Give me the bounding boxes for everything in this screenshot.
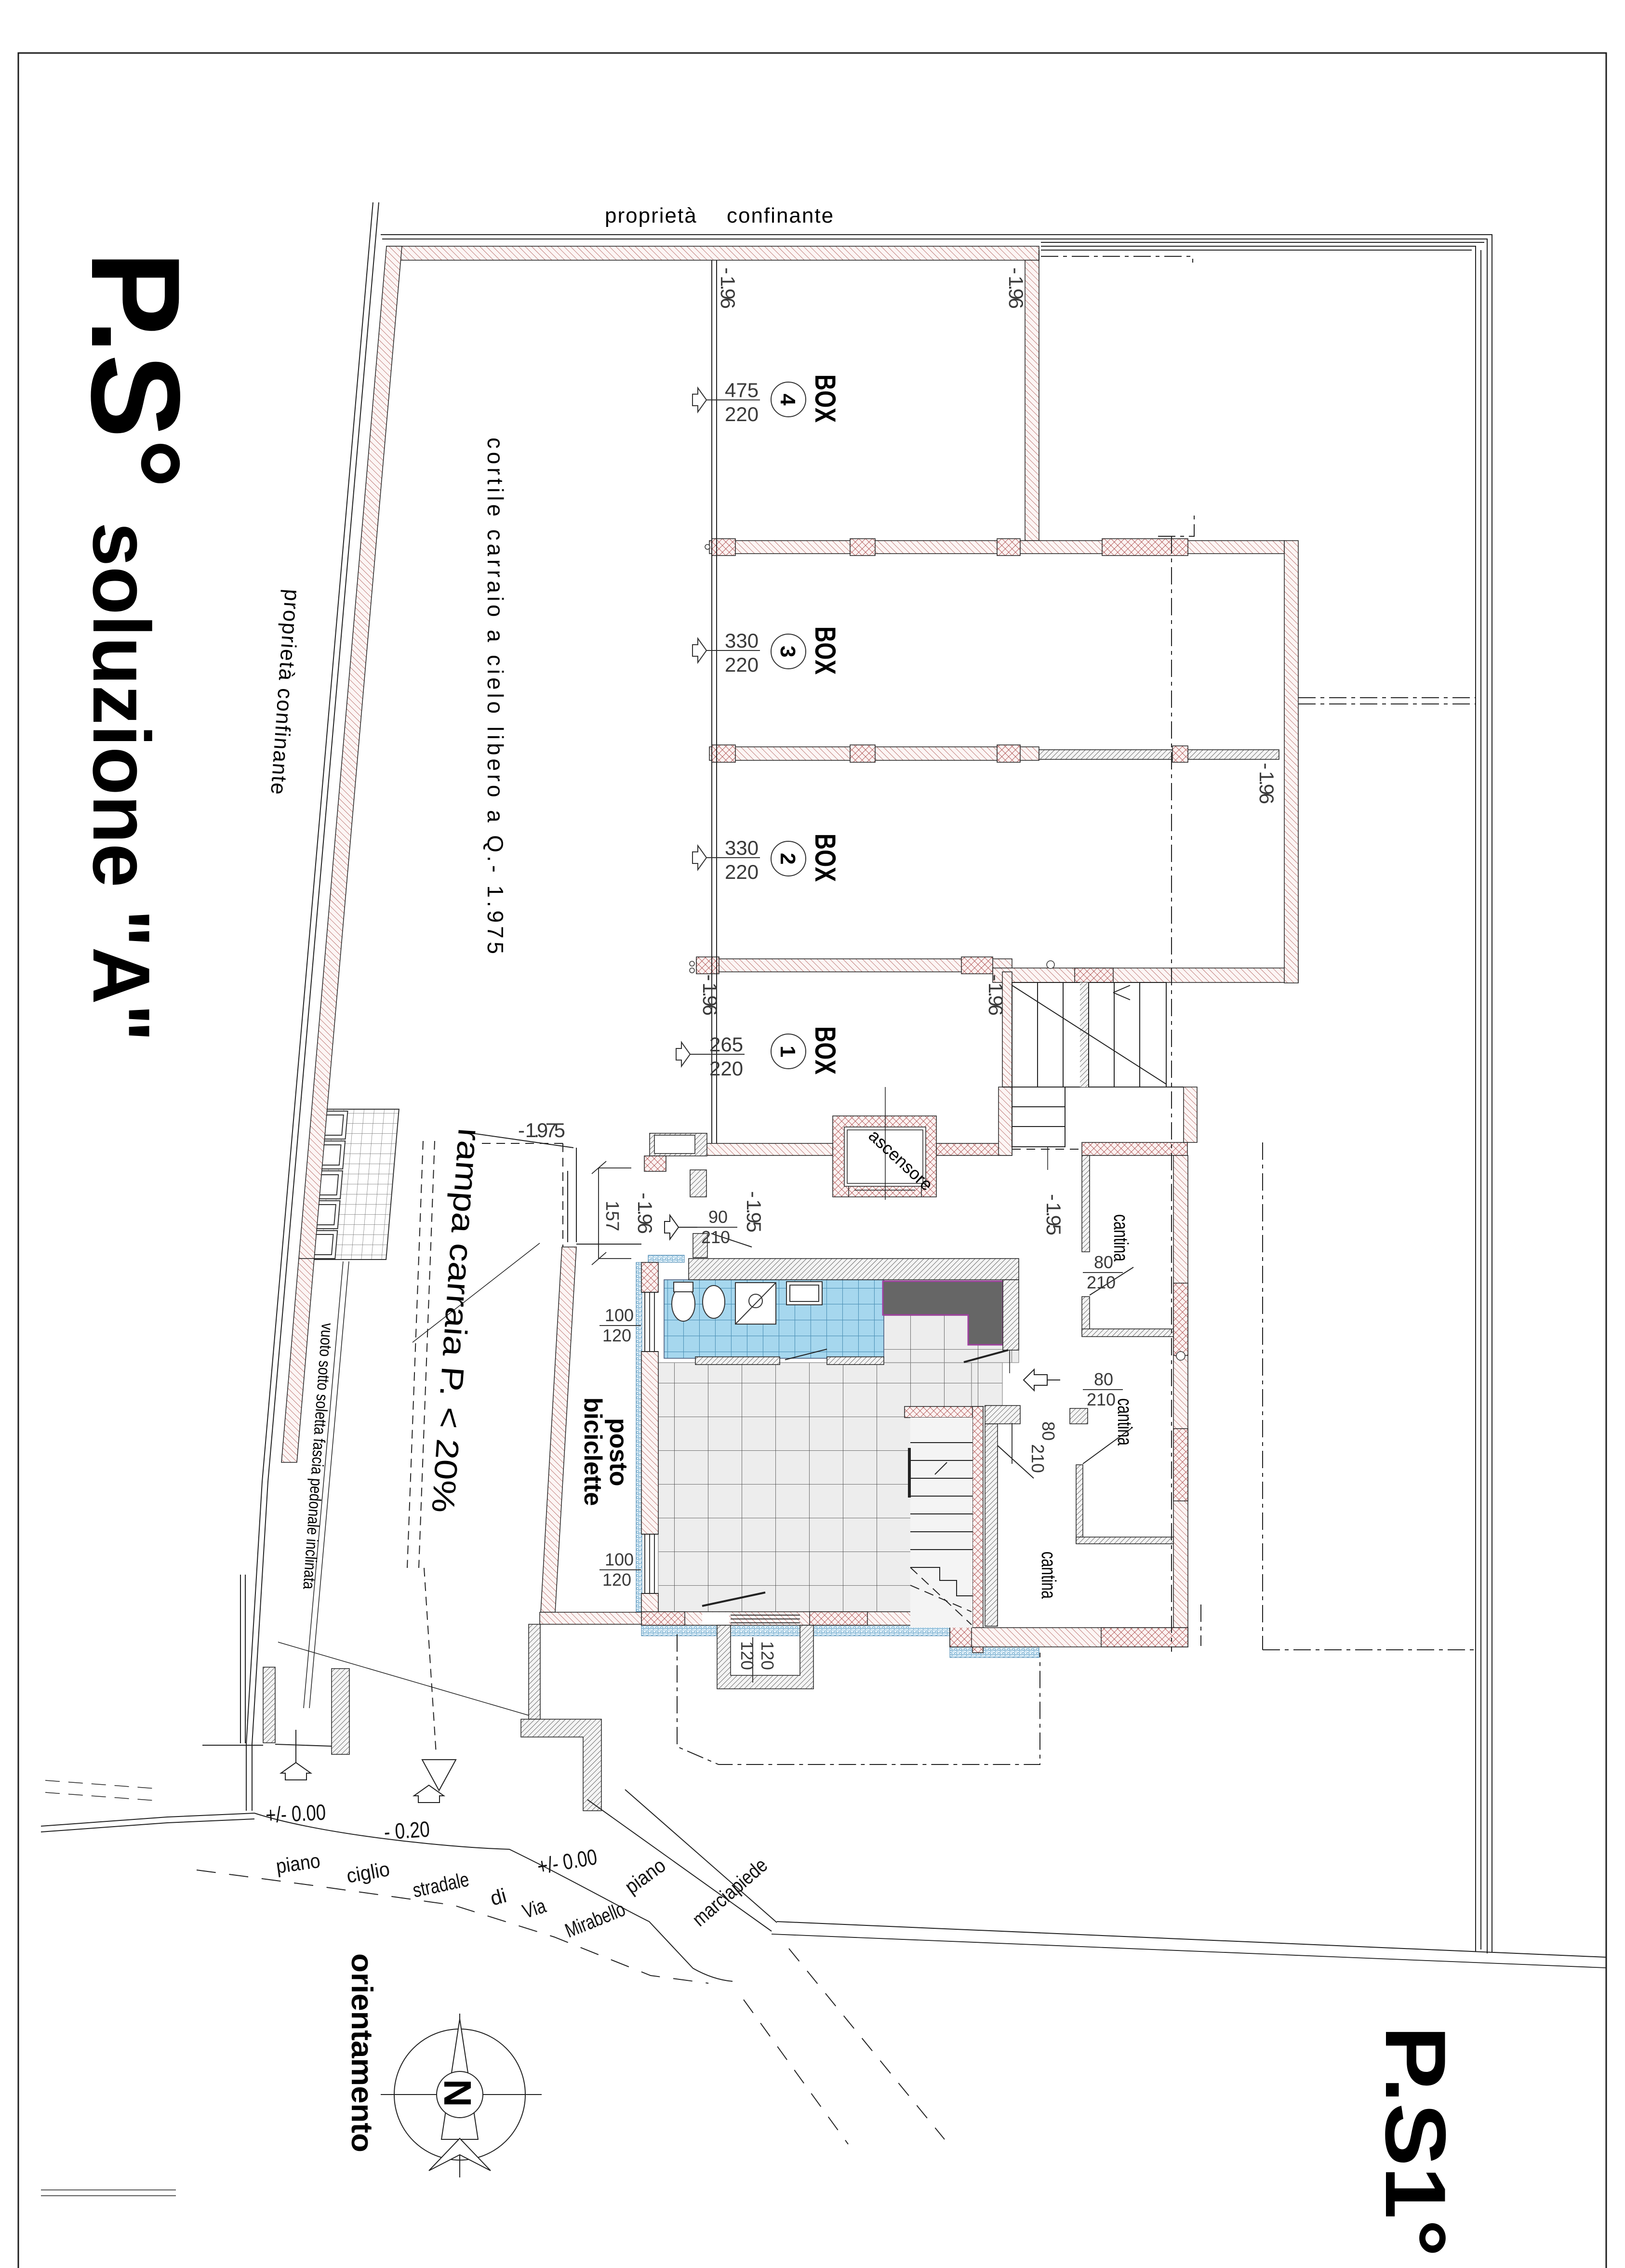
svg-text:Via: Via <box>519 1894 549 1923</box>
svg-text:cortile carraio a cielo li: cortile carraio a cielo libero a Q.- 1.9… <box>483 438 508 954</box>
svg-text:proprietà: proprietà <box>605 204 697 227</box>
svg-text:220: 220 <box>709 1057 743 1080</box>
svg-text:cantina: cantina <box>1114 1398 1136 1446</box>
svg-text:stradale: stradale <box>411 1868 471 1902</box>
svg-text:265: 265 <box>709 1033 743 1056</box>
svg-text:120: 120 <box>758 1641 777 1670</box>
svg-text:+/- 0.00: +/- 0.00 <box>265 1800 327 1828</box>
svg-text:ciglio: ciglio <box>345 1857 391 1887</box>
svg-text:2: 2 <box>776 853 799 864</box>
svg-text:BOX: BOX <box>809 374 841 423</box>
svg-text:- 1.975: - 1.975 <box>518 1119 565 1141</box>
svg-text:100: 100 <box>605 1305 634 1325</box>
svg-text:di: di <box>488 1884 509 1910</box>
svg-text:220: 220 <box>725 861 759 883</box>
svg-text:157: 157 <box>602 1201 622 1231</box>
svg-text:piano: piano <box>275 1849 322 1878</box>
svg-text:- 1.96: - 1.96 <box>1005 267 1027 309</box>
svg-text:210: 210 <box>1028 1444 1048 1473</box>
svg-text:1: 1 <box>776 1046 799 1057</box>
svg-text:soluzione "A": soluzione "A" <box>76 522 167 1042</box>
svg-text:120: 120 <box>602 1570 631 1590</box>
svg-text:BOX: BOX <box>809 834 841 882</box>
svg-text:120: 120 <box>602 1326 631 1345</box>
svg-text:- 0.20: - 0.20 <box>383 1816 430 1844</box>
svg-text:- 1.96: - 1.96 <box>717 267 739 309</box>
svg-text:4: 4 <box>776 394 799 406</box>
svg-text:P.S°: P.S° <box>65 251 206 489</box>
svg-text:210: 210 <box>1087 1390 1116 1409</box>
svg-text:220: 220 <box>725 403 759 425</box>
svg-text:220: 220 <box>725 653 759 676</box>
svg-text:- 1.95: - 1.95 <box>1042 1194 1065 1235</box>
svg-text:90: 90 <box>708 1207 728 1227</box>
svg-text:- 1.95: - 1.95 <box>743 1191 765 1233</box>
svg-text:biciclette: biciclette <box>579 1397 607 1506</box>
svg-text:100: 100 <box>605 1550 634 1569</box>
svg-text:- 1.96: - 1.96 <box>634 1193 656 1234</box>
svg-text:cantina: cantina <box>1038 1552 1060 1599</box>
svg-text:proprietà confinante: proprietà confinante <box>266 588 304 796</box>
svg-text:BOX: BOX <box>809 1026 841 1074</box>
svg-text:3: 3 <box>776 646 799 657</box>
svg-text:N: N <box>436 2079 479 2107</box>
svg-text:posto: posto <box>604 1418 632 1486</box>
svg-text:120: 120 <box>737 1641 757 1670</box>
svg-text:orientamento: orientamento <box>345 1953 378 2152</box>
svg-text:- 1.96: - 1.96 <box>985 974 1007 1016</box>
svg-text:80: 80 <box>1094 1252 1113 1272</box>
svg-text:BOX: BOX <box>809 626 841 675</box>
svg-text:210: 210 <box>1087 1273 1116 1292</box>
svg-text:330: 330 <box>725 836 759 859</box>
svg-text:rampa carraia P. < 20%: rampa carraia P. < 20% <box>425 1127 488 1514</box>
svg-text:- 1.96: - 1.96 <box>1255 763 1278 804</box>
svg-text:Mirabello: Mirabello <box>562 1897 628 1942</box>
svg-text:- 1.96: - 1.96 <box>699 974 721 1016</box>
svg-text:475: 475 <box>725 379 759 401</box>
svg-text:cantina: cantina <box>1110 1214 1132 1261</box>
svg-text:330: 330 <box>725 629 759 652</box>
svg-text:80: 80 <box>1039 1421 1058 1441</box>
svg-text:210: 210 <box>701 1227 730 1247</box>
svg-text:piano: piano <box>621 1854 670 1898</box>
svg-text:+/- 0.00: +/- 0.00 <box>535 1844 599 1879</box>
svg-text:80: 80 <box>1094 1369 1113 1389</box>
svg-text:marciapiede: marciapiede <box>688 1854 772 1931</box>
svg-text:confinante: confinante <box>727 204 834 227</box>
svg-text:P.S1°: P.S1° <box>1368 2026 1464 2257</box>
